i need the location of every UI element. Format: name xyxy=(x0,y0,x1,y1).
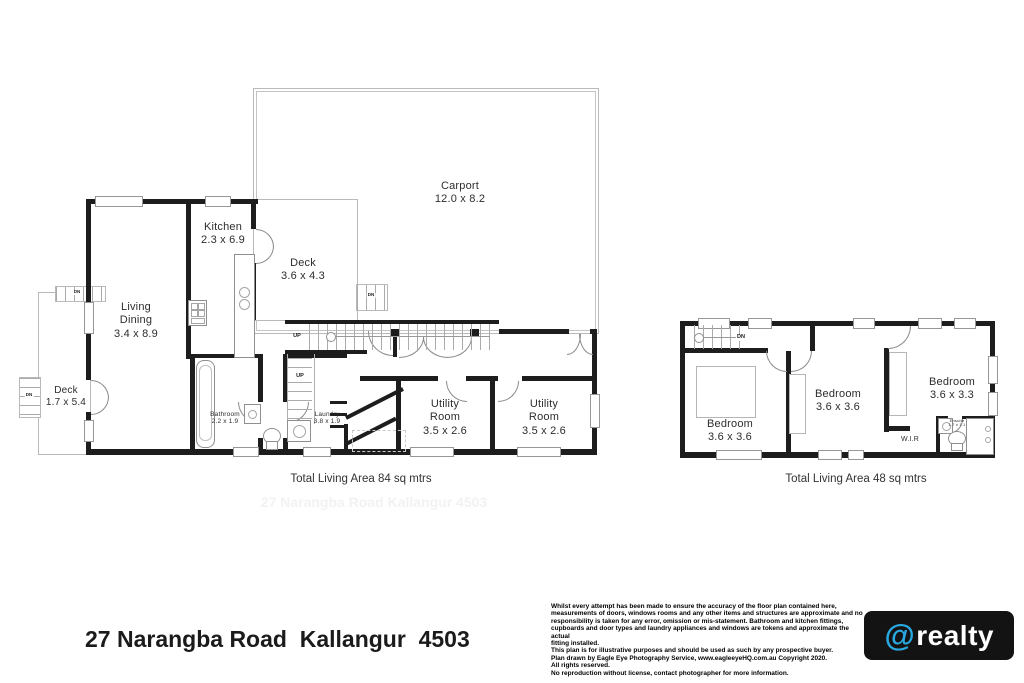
staircase-main xyxy=(289,324,497,350)
window xyxy=(818,450,842,460)
stair-dn-marker: DN xyxy=(736,335,746,341)
floor-plan-page: UP UP DN DN DN xyxy=(0,0,1024,683)
disclaimer-line: This plan is for illustrative purposes a… xyxy=(551,647,869,654)
stair-arrow-start xyxy=(326,332,336,342)
stair-arrow-line xyxy=(335,336,490,337)
deck-left-steps xyxy=(19,377,41,418)
realty-logo: @ realty xyxy=(864,611,1014,660)
laundry-trough xyxy=(287,420,311,442)
door-arc xyxy=(91,380,109,398)
room-label-wir: W.I.R xyxy=(901,436,919,445)
watermark-text: 27 Narangba Road Kallangur 4503 xyxy=(261,494,487,510)
realty-logo-at-icon: @ xyxy=(884,618,914,654)
room-label-bathroom: Bathroom 2.2 x 1.9 xyxy=(210,411,240,426)
room-label-laundry: Laundry 3.8 x 1.9 xyxy=(314,411,341,426)
room-label-kitchen: Kitchen 2.3 x 6.9 xyxy=(201,221,245,248)
window xyxy=(918,318,942,329)
wardrobe xyxy=(889,352,907,416)
entry-door-arc xyxy=(579,334,593,355)
door-arc xyxy=(888,326,911,349)
trough-bowl xyxy=(293,425,306,438)
wall xyxy=(499,329,569,334)
window xyxy=(590,394,600,428)
burner xyxy=(191,310,198,317)
stove xyxy=(188,300,207,326)
kitchen-sink-bowl xyxy=(239,287,250,298)
room-label-deck-top: Deck 3.6 x 4.3 xyxy=(281,257,325,284)
wall xyxy=(680,321,685,458)
disclaimer-line: Plan drawn by Eagle Eye Photography Serv… xyxy=(551,655,869,662)
disclaimer-line: fitting installed. xyxy=(551,640,869,647)
room-label-bedroom-3: Bedroom 3.6 x 3.3 xyxy=(929,376,975,403)
understair-shelf xyxy=(330,401,347,404)
window xyxy=(716,450,762,460)
upper-total-area: Total Living Area 48 sq mtrs xyxy=(785,473,926,485)
window xyxy=(410,447,454,457)
door-arc xyxy=(791,351,812,372)
wall xyxy=(592,426,597,455)
toilet-tank xyxy=(266,441,278,450)
disclaimer-line: cupboards and door types and laundry app… xyxy=(551,625,869,640)
bathroom-sink xyxy=(244,404,261,424)
stair-treads xyxy=(288,358,312,374)
window xyxy=(848,450,864,460)
disclaimer-line: measurements of doors, windows rooms and… xyxy=(551,610,869,617)
shower-tap xyxy=(985,437,991,443)
disclaimer-line: No reproduction without license, contact… xyxy=(551,670,869,677)
stair-up-marker: UP xyxy=(292,334,302,340)
bathtub-inner xyxy=(199,365,212,441)
shower xyxy=(966,418,994,455)
room-label-utility-1: Utility Room 3.5 x 2.6 xyxy=(423,398,467,438)
wall xyxy=(884,426,910,431)
ground-total-area: Total Living Area 84 sq mtrs xyxy=(290,473,431,485)
window xyxy=(233,447,259,457)
disclaimer-line: All rights reserved. xyxy=(551,662,869,669)
door-arc xyxy=(498,381,519,402)
wall xyxy=(522,376,597,381)
kitchen-sink-bowl xyxy=(239,299,250,310)
door-arc xyxy=(91,397,109,415)
shower-tap xyxy=(985,426,991,432)
wardrobe xyxy=(789,374,806,434)
deck-dn-marker: DN xyxy=(73,290,82,295)
window xyxy=(95,196,143,207)
window xyxy=(205,196,231,207)
wall xyxy=(344,424,348,452)
disclaimer-block: Whilst every attempt has been made to en… xyxy=(551,603,869,677)
oven xyxy=(191,318,205,324)
wall xyxy=(86,199,91,304)
window xyxy=(748,318,772,329)
room-label-deck-left: Deck 1.7 x 5.4 xyxy=(46,385,86,409)
stair-treads xyxy=(288,382,312,422)
room-label-bedroom-2: Bedroom 3.6 x 3.6 xyxy=(815,388,861,415)
wall xyxy=(810,321,815,351)
wall xyxy=(251,199,256,229)
door-arc xyxy=(766,351,787,372)
room-label-carport: Carport 12.0 x 8.2 xyxy=(435,180,485,207)
property-address: 27 Narangba Road Kallangur 4503 xyxy=(85,626,470,653)
window xyxy=(517,447,561,457)
wall xyxy=(186,199,191,359)
wall xyxy=(258,354,263,402)
room-label-bedroom-1: Bedroom 3.6 x 3.6 xyxy=(707,418,753,445)
window xyxy=(84,420,94,442)
burner xyxy=(191,303,198,310)
room-label-utility-2: Utility Room 3.5 x 2.6 xyxy=(522,398,566,438)
stair-treads xyxy=(309,324,497,350)
window xyxy=(84,302,94,334)
window xyxy=(303,447,331,457)
realty-logo-text: realty xyxy=(916,620,994,652)
disclaimer-line: Whilst every attempt has been made to en… xyxy=(551,603,869,610)
kitchen-bench xyxy=(234,254,255,358)
staircase-lower xyxy=(287,354,315,424)
window xyxy=(853,318,875,329)
stair-arrow-start xyxy=(694,333,704,343)
stair-up-marker: UP xyxy=(295,374,305,380)
toilet-tank xyxy=(951,443,963,451)
wall xyxy=(190,354,195,454)
understair-storage xyxy=(352,430,406,452)
window xyxy=(988,392,998,416)
burner xyxy=(198,303,205,310)
window xyxy=(988,356,998,384)
deck-dn-marker: DN xyxy=(367,293,376,298)
wall xyxy=(490,376,495,455)
deck-stairs xyxy=(356,284,388,311)
bed xyxy=(696,366,756,418)
wall xyxy=(86,330,91,380)
room-label-ensuite: Ensuite 1.7 x 1.1 xyxy=(948,419,965,428)
sink-bowl xyxy=(248,410,257,419)
deck-dn-marker: DN xyxy=(25,393,34,398)
window xyxy=(954,318,976,329)
room-label-living: Living Dining 3.4 x 8.9 xyxy=(114,301,158,341)
disclaimer-line: responsibility is taken for any error, o… xyxy=(551,618,869,625)
bathtub xyxy=(196,360,215,448)
burner xyxy=(198,310,205,317)
